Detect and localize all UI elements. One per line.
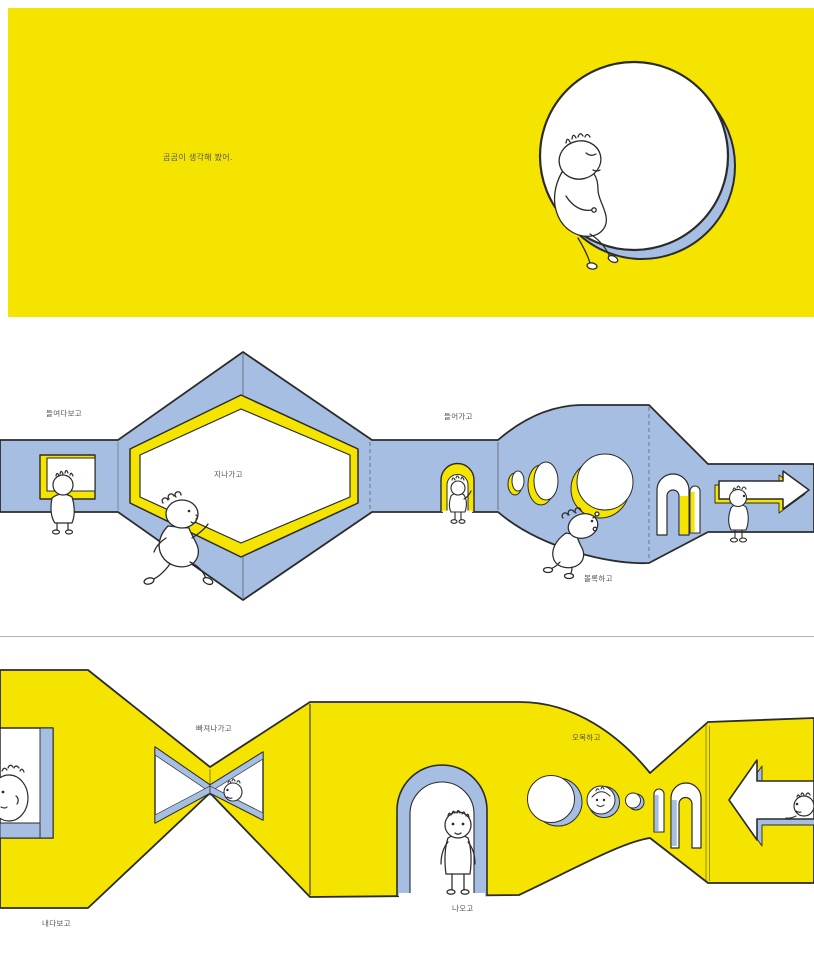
eye-left [452,823,455,826]
slot-blue-stripe [655,795,659,831]
label-pass-through: 지나가고 [214,470,243,479]
window-rim-bottom [0,823,40,838]
arch-doorway [397,765,487,901]
foot [53,530,60,534]
eye [591,520,594,523]
body [729,504,749,530]
eye-right [462,823,465,826]
eye [188,510,191,513]
foot [565,574,574,579]
mid-hole [587,786,615,814]
label-look-out: 내다보고 [42,919,71,928]
label-convex: 볼록하고 [584,573,613,583]
middle-panel: 지나가고 [0,318,814,636]
foot [731,538,738,542]
body [450,493,467,512]
foot [143,577,154,585]
window-rim-right [40,728,53,838]
foot [461,890,469,894]
head [730,490,747,507]
label-slip-out: 빠져나가고 [196,723,232,733]
label-concave: 오목하고 [572,732,601,742]
window-peeker [51,471,74,535]
head [53,475,73,495]
blue-corridor [0,352,814,600]
eye [226,789,228,791]
big-hole [528,776,575,823]
foot [459,520,465,524]
book-spread: 곰곰이 생각해 봤어. [0,0,814,958]
label-go-in: 들어가고 [444,411,473,421]
top-panel-art: 곰곰이 생각해 봤어. [0,0,814,318]
body [51,494,74,523]
label-come-out: 나오고 [452,904,474,913]
foot [451,520,457,524]
foot [740,538,747,542]
foot [66,530,73,534]
eye [2,791,5,794]
foot [447,890,455,894]
head [166,500,198,528]
mid-hole [534,462,558,500]
left-window [0,728,53,838]
slot-channel [654,789,664,832]
head [794,796,814,816]
n-channel-blue-leg [672,800,677,846]
small-hole [512,471,524,491]
middle-panel-art: 지나가고 [0,318,814,636]
caption-text: 곰곰이 생각해 봤어. [163,152,233,162]
top-panel: 곰곰이 생각해 봤어. [0,0,814,318]
hand [595,512,599,516]
slot-channel [690,486,700,533]
small-hole [626,793,641,808]
panel-divider-line [0,636,814,637]
eye-right [603,799,605,801]
head [451,481,465,495]
eye [796,803,799,806]
body [445,835,471,874]
slot-yellow-stripe [691,492,695,532]
arrow-walker [729,486,749,542]
eye-left [596,799,598,801]
legs [57,523,68,530]
hand [592,208,596,212]
arch-floor-gap [399,893,485,901]
label-peek-in: 들여다보고 [46,408,82,418]
big-hole [577,454,633,510]
eye [743,495,745,497]
foot [544,568,553,573]
head [224,783,242,801]
n-channel-yellow-leg [680,496,689,534]
bottom-panel: 내다보고 빠져나가고 [0,636,814,958]
bottom-panel-art: 내다보고 빠져나가고 [0,636,814,958]
